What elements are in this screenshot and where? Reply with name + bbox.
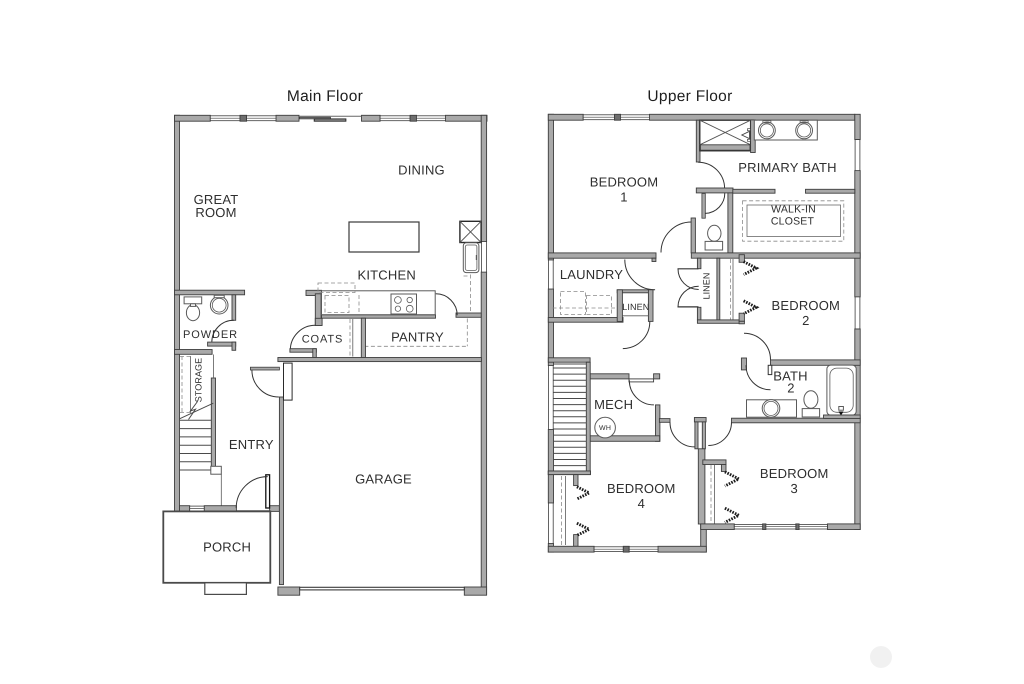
svg-text:KITCHEN: KITCHEN <box>357 267 415 282</box>
svg-text:PORCH: PORCH <box>203 540 251 555</box>
svg-text:Upper Floor: Upper Floor <box>647 88 732 105</box>
svg-text:DINING: DINING <box>398 163 445 178</box>
svg-text:BEDROOM: BEDROOM <box>772 298 841 313</box>
svg-text:3: 3 <box>790 481 797 496</box>
svg-text:LAUNDRY: LAUNDRY <box>560 267 623 282</box>
svg-text:BEDROOM: BEDROOM <box>590 175 659 190</box>
svg-text:WALK-IN: WALK-IN <box>771 203 816 215</box>
svg-text:PRIMARY BATH: PRIMARY BATH <box>738 160 836 175</box>
svg-text:LINEN: LINEN <box>701 272 711 299</box>
svg-text:STORAGE: STORAGE <box>194 358 204 403</box>
svg-text:Main Floor: Main Floor <box>287 88 363 105</box>
svg-text:1: 1 <box>620 190 627 205</box>
svg-text:POWDER: POWDER <box>183 329 238 341</box>
svg-text:PANTRY: PANTRY <box>391 330 444 345</box>
svg-text:GARAGE: GARAGE <box>355 472 412 487</box>
svg-text:2: 2 <box>802 313 809 328</box>
svg-text:ROOM: ROOM <box>195 205 236 220</box>
svg-text:2: 2 <box>787 381 794 396</box>
svg-text:ENTRY: ENTRY <box>229 437 274 452</box>
svg-text:BEDROOM: BEDROOM <box>760 466 829 481</box>
svg-text:MECH: MECH <box>594 397 633 412</box>
svg-text:COATS: COATS <box>302 334 344 346</box>
svg-text:CLOSET: CLOSET <box>771 216 815 228</box>
svg-text:BEDROOM: BEDROOM <box>607 481 676 496</box>
svg-text:4: 4 <box>638 496 645 511</box>
svg-text:LINEN: LINEN <box>622 302 649 312</box>
svg-text:WH: WH <box>599 425 611 432</box>
